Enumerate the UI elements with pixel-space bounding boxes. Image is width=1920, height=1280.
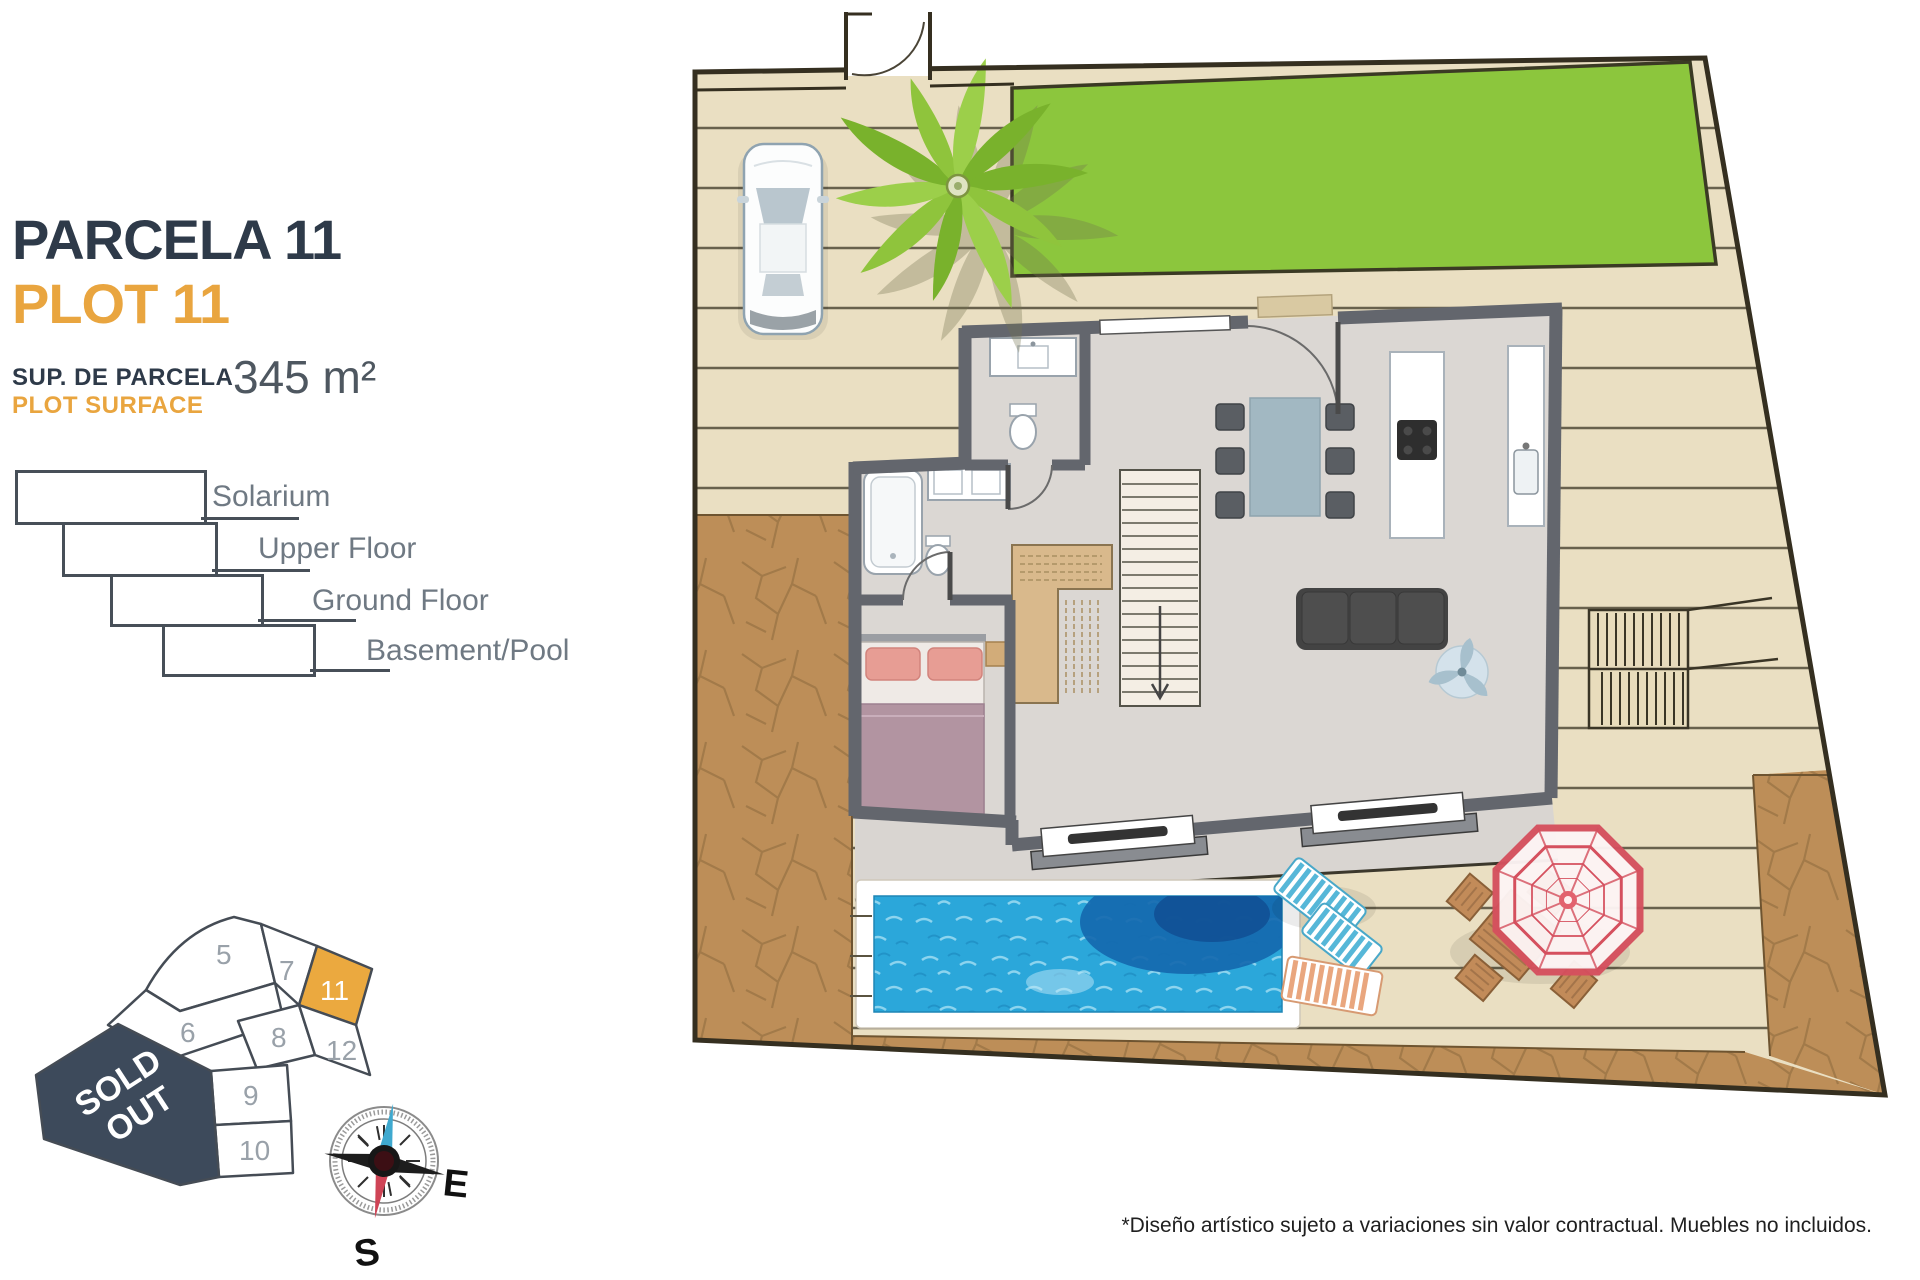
disclaimer-text: *Diseño artístico sujeto a variaciones s…	[1121, 1214, 1872, 1238]
doormat	[1258, 295, 1333, 318]
pillow	[928, 648, 982, 680]
pillow	[866, 648, 920, 680]
parasol-icon	[1496, 828, 1640, 972]
house	[853, 295, 1562, 870]
car-windshield	[756, 188, 810, 224]
bed-blanket	[860, 704, 984, 814]
floor-plan	[0, 0, 1920, 1280]
wc-toilet	[1010, 415, 1036, 449]
entrance-gate	[846, 12, 930, 80]
sofa	[1296, 588, 1448, 650]
car	[737, 144, 829, 340]
dining-set	[1216, 398, 1354, 518]
cooktop	[1397, 420, 1437, 460]
car-mirror	[817, 196, 829, 203]
dining-table	[1250, 398, 1320, 516]
lawn	[1012, 62, 1716, 276]
car-mirror	[737, 196, 749, 203]
brochure-page: PARCELA 11 PLOT 11 SUP. DE PARCELA PLOT …	[0, 0, 1920, 1280]
kitchen-counter	[1508, 346, 1544, 526]
kitchen-sink	[1514, 450, 1538, 494]
interior-staircase	[1120, 470, 1200, 706]
toilet	[926, 545, 950, 575]
pool	[850, 870, 1300, 1028]
